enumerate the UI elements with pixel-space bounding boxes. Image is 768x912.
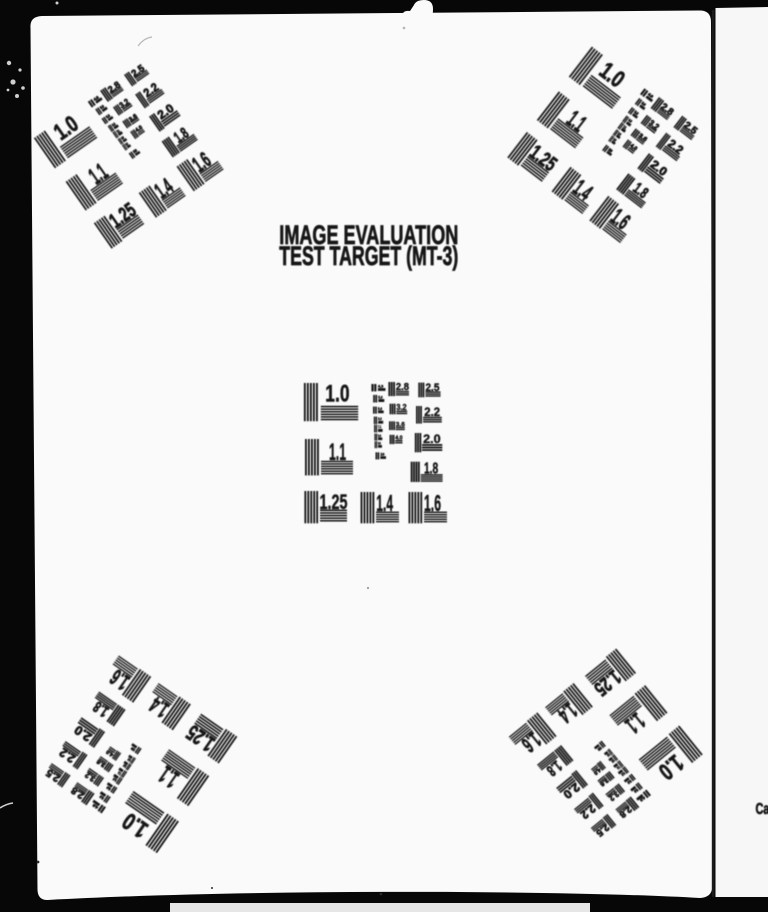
svg-text:Ca: Ca: [756, 801, 768, 818]
svg-text:TEST TARGET (MT-3): TEST TARGET (MT-3): [279, 241, 458, 271]
